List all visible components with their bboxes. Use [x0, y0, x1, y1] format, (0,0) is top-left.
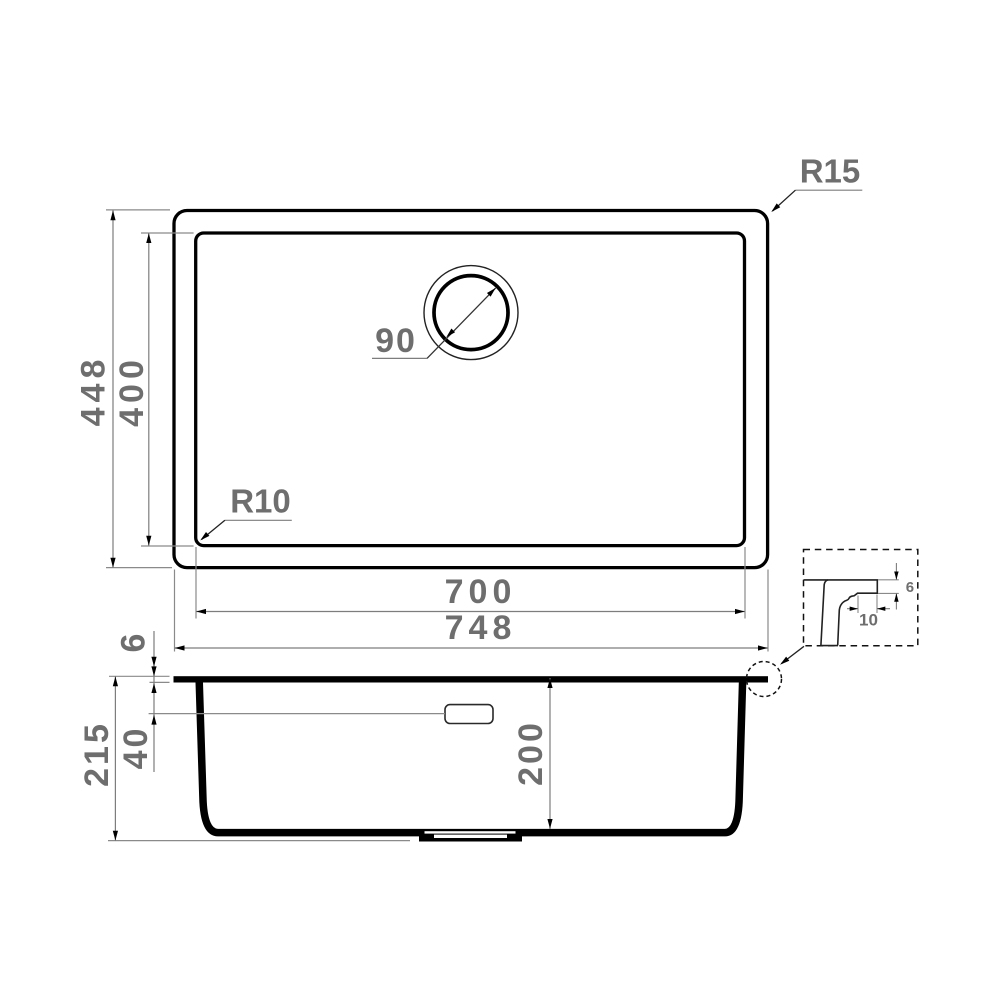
- svg-text:40: 40: [117, 726, 155, 770]
- svg-text:215: 215: [78, 721, 116, 787]
- svg-text:748: 748: [445, 609, 517, 647]
- svg-text:90: 90: [375, 322, 417, 360]
- svg-text:448: 448: [75, 355, 113, 427]
- svg-text:10: 10: [859, 611, 878, 630]
- svg-text:R15: R15: [800, 153, 861, 190]
- svg-text:700: 700: [445, 573, 517, 611]
- svg-text:R10: R10: [230, 483, 291, 520]
- svg-text:6: 6: [115, 634, 153, 653]
- svg-text:200: 200: [512, 720, 550, 786]
- svg-text:6: 6: [906, 579, 914, 596]
- svg-text:400: 400: [113, 355, 151, 427]
